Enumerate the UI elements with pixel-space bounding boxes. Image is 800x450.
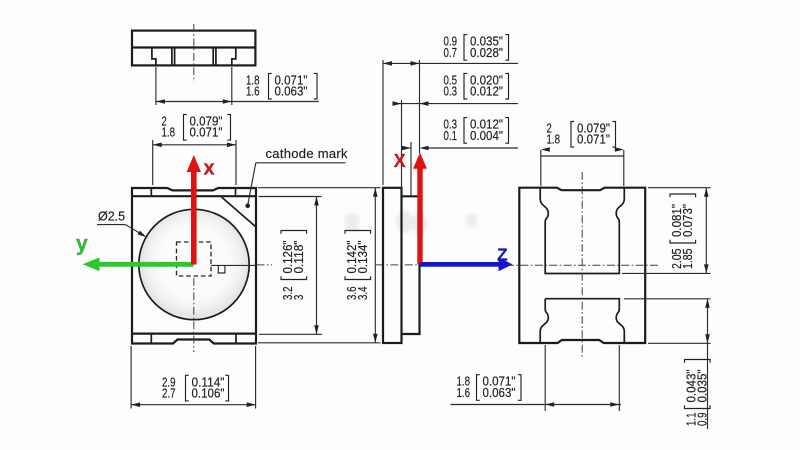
svg-text:0.134": 0.134" [356,241,370,274]
svg-text:0.004": 0.004" [470,129,503,143]
svg-text:Z: Z [497,245,508,265]
svg-text:0.071": 0.071" [190,126,223,140]
svg-text:1.8: 1.8 [547,133,561,147]
svg-text:cathode mark: cathode mark [266,146,349,161]
svg-text:0.3: 0.3 [444,85,458,99]
svg-text:1.85: 1.85 [681,248,695,269]
svg-text:0.063": 0.063" [275,85,308,99]
svg-text:0.071": 0.071" [577,133,610,147]
svg-text:0.118": 0.118" [292,241,306,274]
svg-text:3.4: 3.4 [356,286,370,300]
svg-text:1.6: 1.6 [246,85,260,99]
svg-text:Ø2.5: Ø2.5 [98,209,125,223]
svg-text:0.063": 0.063" [483,386,516,400]
svg-text:0.073": 0.073" [681,204,695,237]
svg-text:0.035": 0.035" [696,370,710,403]
svg-text:x: x [204,158,215,180]
svg-text:y: y [76,233,88,256]
svg-text:1.8: 1.8 [162,126,176,140]
svg-text:0.012": 0.012" [470,85,503,99]
svg-text:0.106": 0.106" [192,387,225,401]
svg-text:X: X [394,151,406,171]
svg-text:1.6: 1.6 [457,386,471,400]
svg-text:0.9: 0.9 [696,412,710,426]
svg-text:0.028": 0.028" [470,46,503,60]
svg-text:2.7: 2.7 [162,387,176,401]
svg-text:0.1: 0.1 [444,129,458,143]
svg-text:3: 3 [292,295,306,300]
svg-text:0.7: 0.7 [444,46,458,60]
